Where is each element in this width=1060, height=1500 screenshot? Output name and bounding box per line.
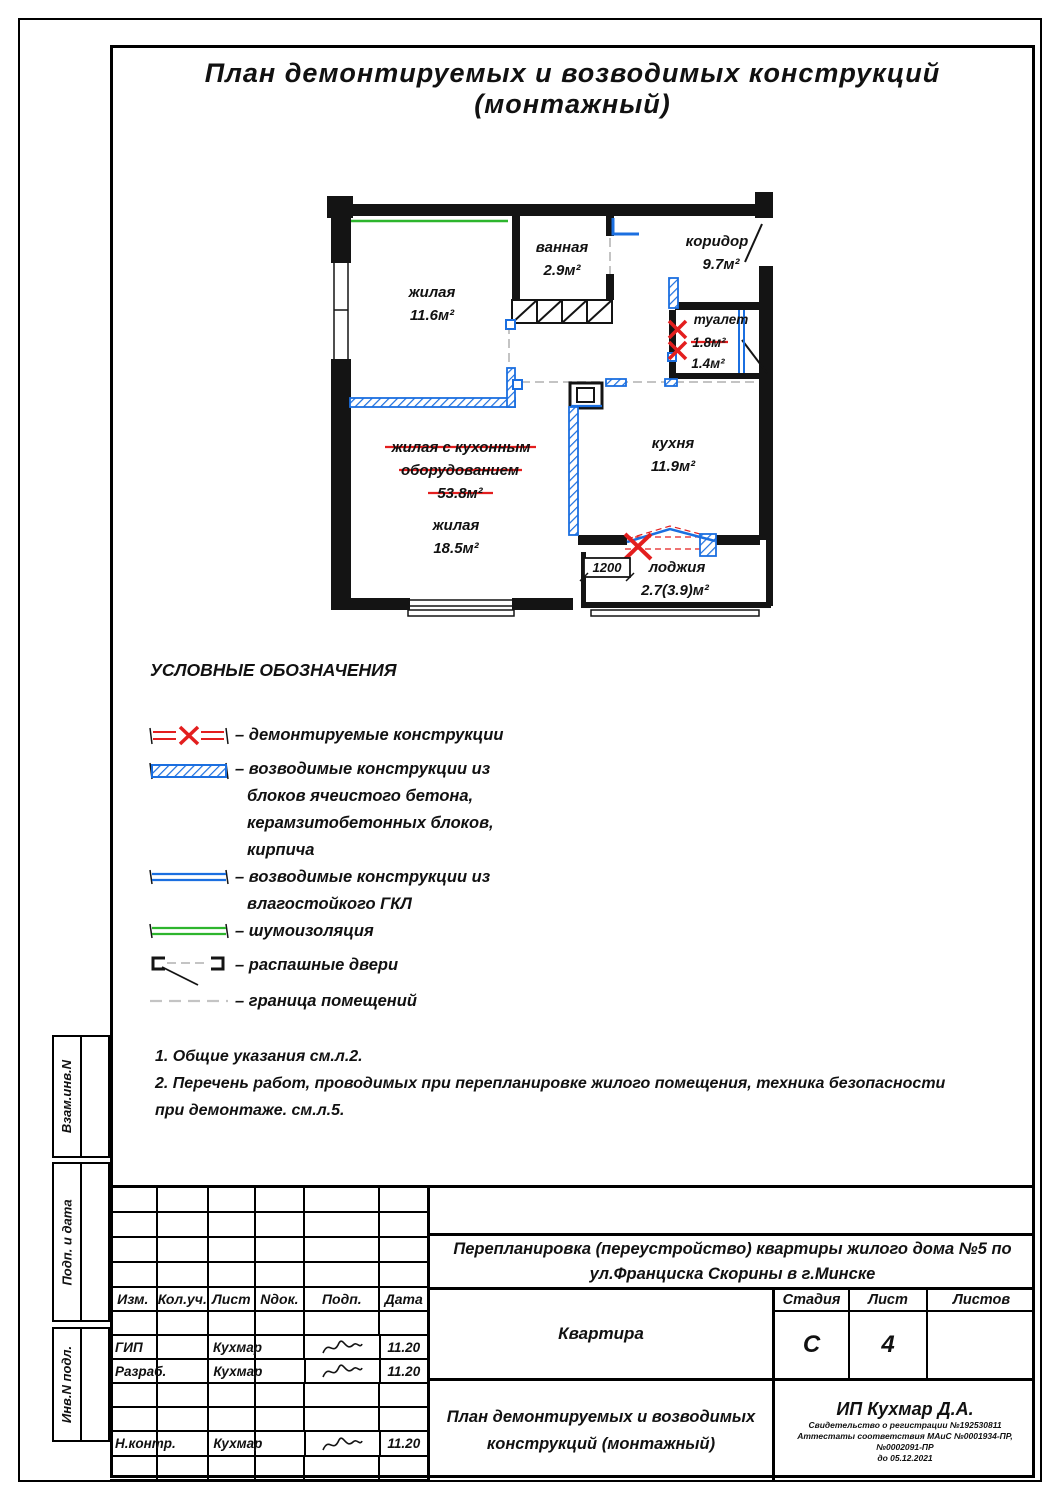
room-wc-name: туалет [694, 312, 749, 327]
legend-symbol-masonry [148, 760, 230, 787]
signature [306, 1360, 381, 1384]
note-2: 2. Перечень работ, проводимых при перепл… [155, 1075, 945, 1093]
firm-name: ИП Кухмар Д.А. [836, 1399, 973, 1420]
drawing-sheet: План демонтируемых и возводимых конструк… [0, 0, 1060, 1500]
note-3: при демонтаже. см.л.5. [155, 1102, 344, 1120]
floor-plan-svg: 1200 жилая 11.6м² ванная 2.9м² коридор 9… [325, 190, 775, 630]
room-kitchen-name: кухня [652, 435, 695, 452]
col-koluch: Кол.уч. [158, 1288, 210, 1312]
legend-label-masonry-3: керамзитобетонных блоков, [247, 814, 494, 833]
room-loggia-area: 2.7(3.9)м² [640, 582, 710, 599]
bathroom-niche-row [512, 300, 612, 323]
staff-date: 11.20 [381, 1336, 427, 1360]
project-name-cell: Перепланировка (переустройство) квартиры… [430, 1236, 1035, 1290]
col-izm: Изм. [110, 1288, 158, 1312]
room-bath-name: ванная [536, 239, 589, 256]
legend-label-sound-insulation: – шумоизоляция [235, 922, 374, 941]
sheet-value: 4 [850, 1312, 928, 1381]
legend-label-gkl-1: – возводимые конструкции из [235, 868, 490, 887]
room-struck-line2: оборудованием [401, 462, 519, 479]
sheets-value [928, 1312, 1035, 1381]
legend-symbol-room-boundary [148, 994, 230, 1012]
window-left [331, 262, 351, 360]
window-bottom [408, 600, 514, 616]
room-living1-name: жилая [408, 284, 456, 301]
legend-symbol-swing-doors [148, 950, 230, 993]
dimension-1200-value: 1200 [593, 560, 623, 575]
room-struck-line1: жилая с кухонным [391, 439, 531, 456]
room-living2-area: 18.5м² [433, 540, 479, 557]
staff-date: 11.20 [381, 1432, 427, 1457]
side-box-inv: Инв.N подл. [52, 1327, 110, 1442]
staff-row-nkontr: Н.контр. Кухмар 11.20 [110, 1432, 427, 1457]
room-kitchen-area: 11.9м² [651, 458, 696, 475]
room-bath-area: 2.9м² [543, 262, 582, 279]
legend-label-swing-doors: – распашные двери [235, 956, 398, 975]
staff-role: ГИП [110, 1336, 158, 1360]
side-label-vzam: Взам.инв.N [54, 1037, 82, 1156]
staff-role: Разраб. [110, 1360, 158, 1384]
legend-label-gkl-2: влагостойкого ГКЛ [247, 895, 412, 914]
staff-date: 11.20 [381, 1360, 427, 1384]
staff-rows: ГИП Кухмар 11.20 Разраб. Кухмар 11.20 [110, 1312, 430, 1481]
floor-plan: 1200 жилая 11.6м² ванная 2.9м² коридор 9… [325, 190, 775, 630]
firm-cell: ИП Кухмар Д.А. Свидетельство о регистрац… [775, 1381, 1035, 1481]
vent-duct [570, 383, 602, 408]
stage-value: С [775, 1312, 850, 1381]
firm-cert-1: Свидетельство о регистрации №192530811 [808, 1420, 1001, 1431]
staff-name: Кухмар [209, 1336, 256, 1360]
sheets-label: Листов [928, 1290, 1035, 1312]
staff-name: Кухмар [209, 1432, 256, 1457]
signature [305, 1336, 380, 1360]
firm-cert-2: Аттестаты соответствия МАиС №0001934-ПР,… [775, 1431, 1035, 1453]
side-box-podp: Подп. и дата [52, 1162, 110, 1322]
room-corridor-area: 9.7м² [703, 256, 741, 273]
legend-heading: УСЛОВНЫЕ ОБОЗНАЧЕНИЯ [150, 660, 397, 681]
wall-end-markers [506, 320, 676, 389]
drawing-name-line2: конструкций (монтажный) [487, 1431, 715, 1458]
staff-name: Кухмар [209, 1360, 256, 1384]
firm-cert-3: до 05.12.2021 [877, 1453, 932, 1464]
object-name-cell: Квартира [430, 1290, 775, 1381]
legend-label-masonry-4: кирпича [247, 841, 314, 860]
col-data: Дата [380, 1288, 427, 1312]
staff-row-gip: ГИП Кухмар 11.20 [110, 1336, 427, 1360]
legend-symbol-demolition [148, 724, 230, 753]
room-struck-area: 53.8м² [437, 485, 483, 502]
side-box-vzam: Взам.инв.N [52, 1035, 110, 1158]
titleblock-empty-strip [430, 1188, 1035, 1236]
legend-label-room-boundary: – граница помещений [235, 992, 417, 1011]
room-loggia-name: лоджия [648, 559, 706, 576]
col-list: Лист [209, 1288, 256, 1312]
project-name-line2: ул.Франциска Скорины в г.Минске [590, 1262, 876, 1287]
side-label-inv: Инв.N подл. [54, 1329, 82, 1440]
revision-grid [110, 1188, 430, 1288]
staff-role: Н.контр. [110, 1432, 158, 1457]
col-ndok: Nдок. [256, 1288, 306, 1312]
titleblock-header-row: Изм. Кол.уч. Лист Nдок. Подп. Дата [110, 1288, 430, 1312]
room-wc-area-old: 1.8м² [692, 335, 726, 350]
room-living2-name: жилая [432, 517, 480, 534]
sheet-label: Лист [850, 1290, 928, 1312]
stage-label: Стадия [775, 1290, 850, 1312]
drawing-name-line1: План демонтируемых и возводимых [447, 1404, 755, 1431]
legend-symbol-gkl [148, 868, 230, 891]
col-podp: Подп. [305, 1288, 380, 1312]
side-label-podp: Подп. и дата [54, 1164, 82, 1320]
note-1: 1. Общие указания см.л.2. [155, 1048, 363, 1066]
room-wc-area-new: 1.4м² [691, 356, 725, 371]
dimension-1200: 1200 [580, 558, 634, 581]
legend-symbol-sound-insulation [148, 922, 230, 945]
legend-label-masonry-1: – возводимые конструкции из [235, 760, 490, 779]
room-living1-area: 11.6м² [410, 307, 455, 324]
page-title: План демонтируемых и возводимых конструк… [110, 58, 1035, 120]
staff-row-razrab: Разраб. Кухмар 11.20 [110, 1360, 427, 1384]
title-block: Изм. Кол.уч. Лист Nдок. Подп. Дата ГИП К… [110, 1185, 1035, 1478]
legend-label-demolition: – демонтируемые конструкции [235, 726, 503, 745]
room-corridor-name: коридор [686, 233, 749, 250]
project-name-line1: Перепланировка (переустройство) квартиры… [453, 1237, 1011, 1262]
signature [306, 1432, 381, 1457]
drawing-name-cell: План демонтируемых и возводимых конструк… [430, 1381, 775, 1481]
legend-label-masonry-2: блоков ячеистого бетона, [247, 787, 473, 806]
